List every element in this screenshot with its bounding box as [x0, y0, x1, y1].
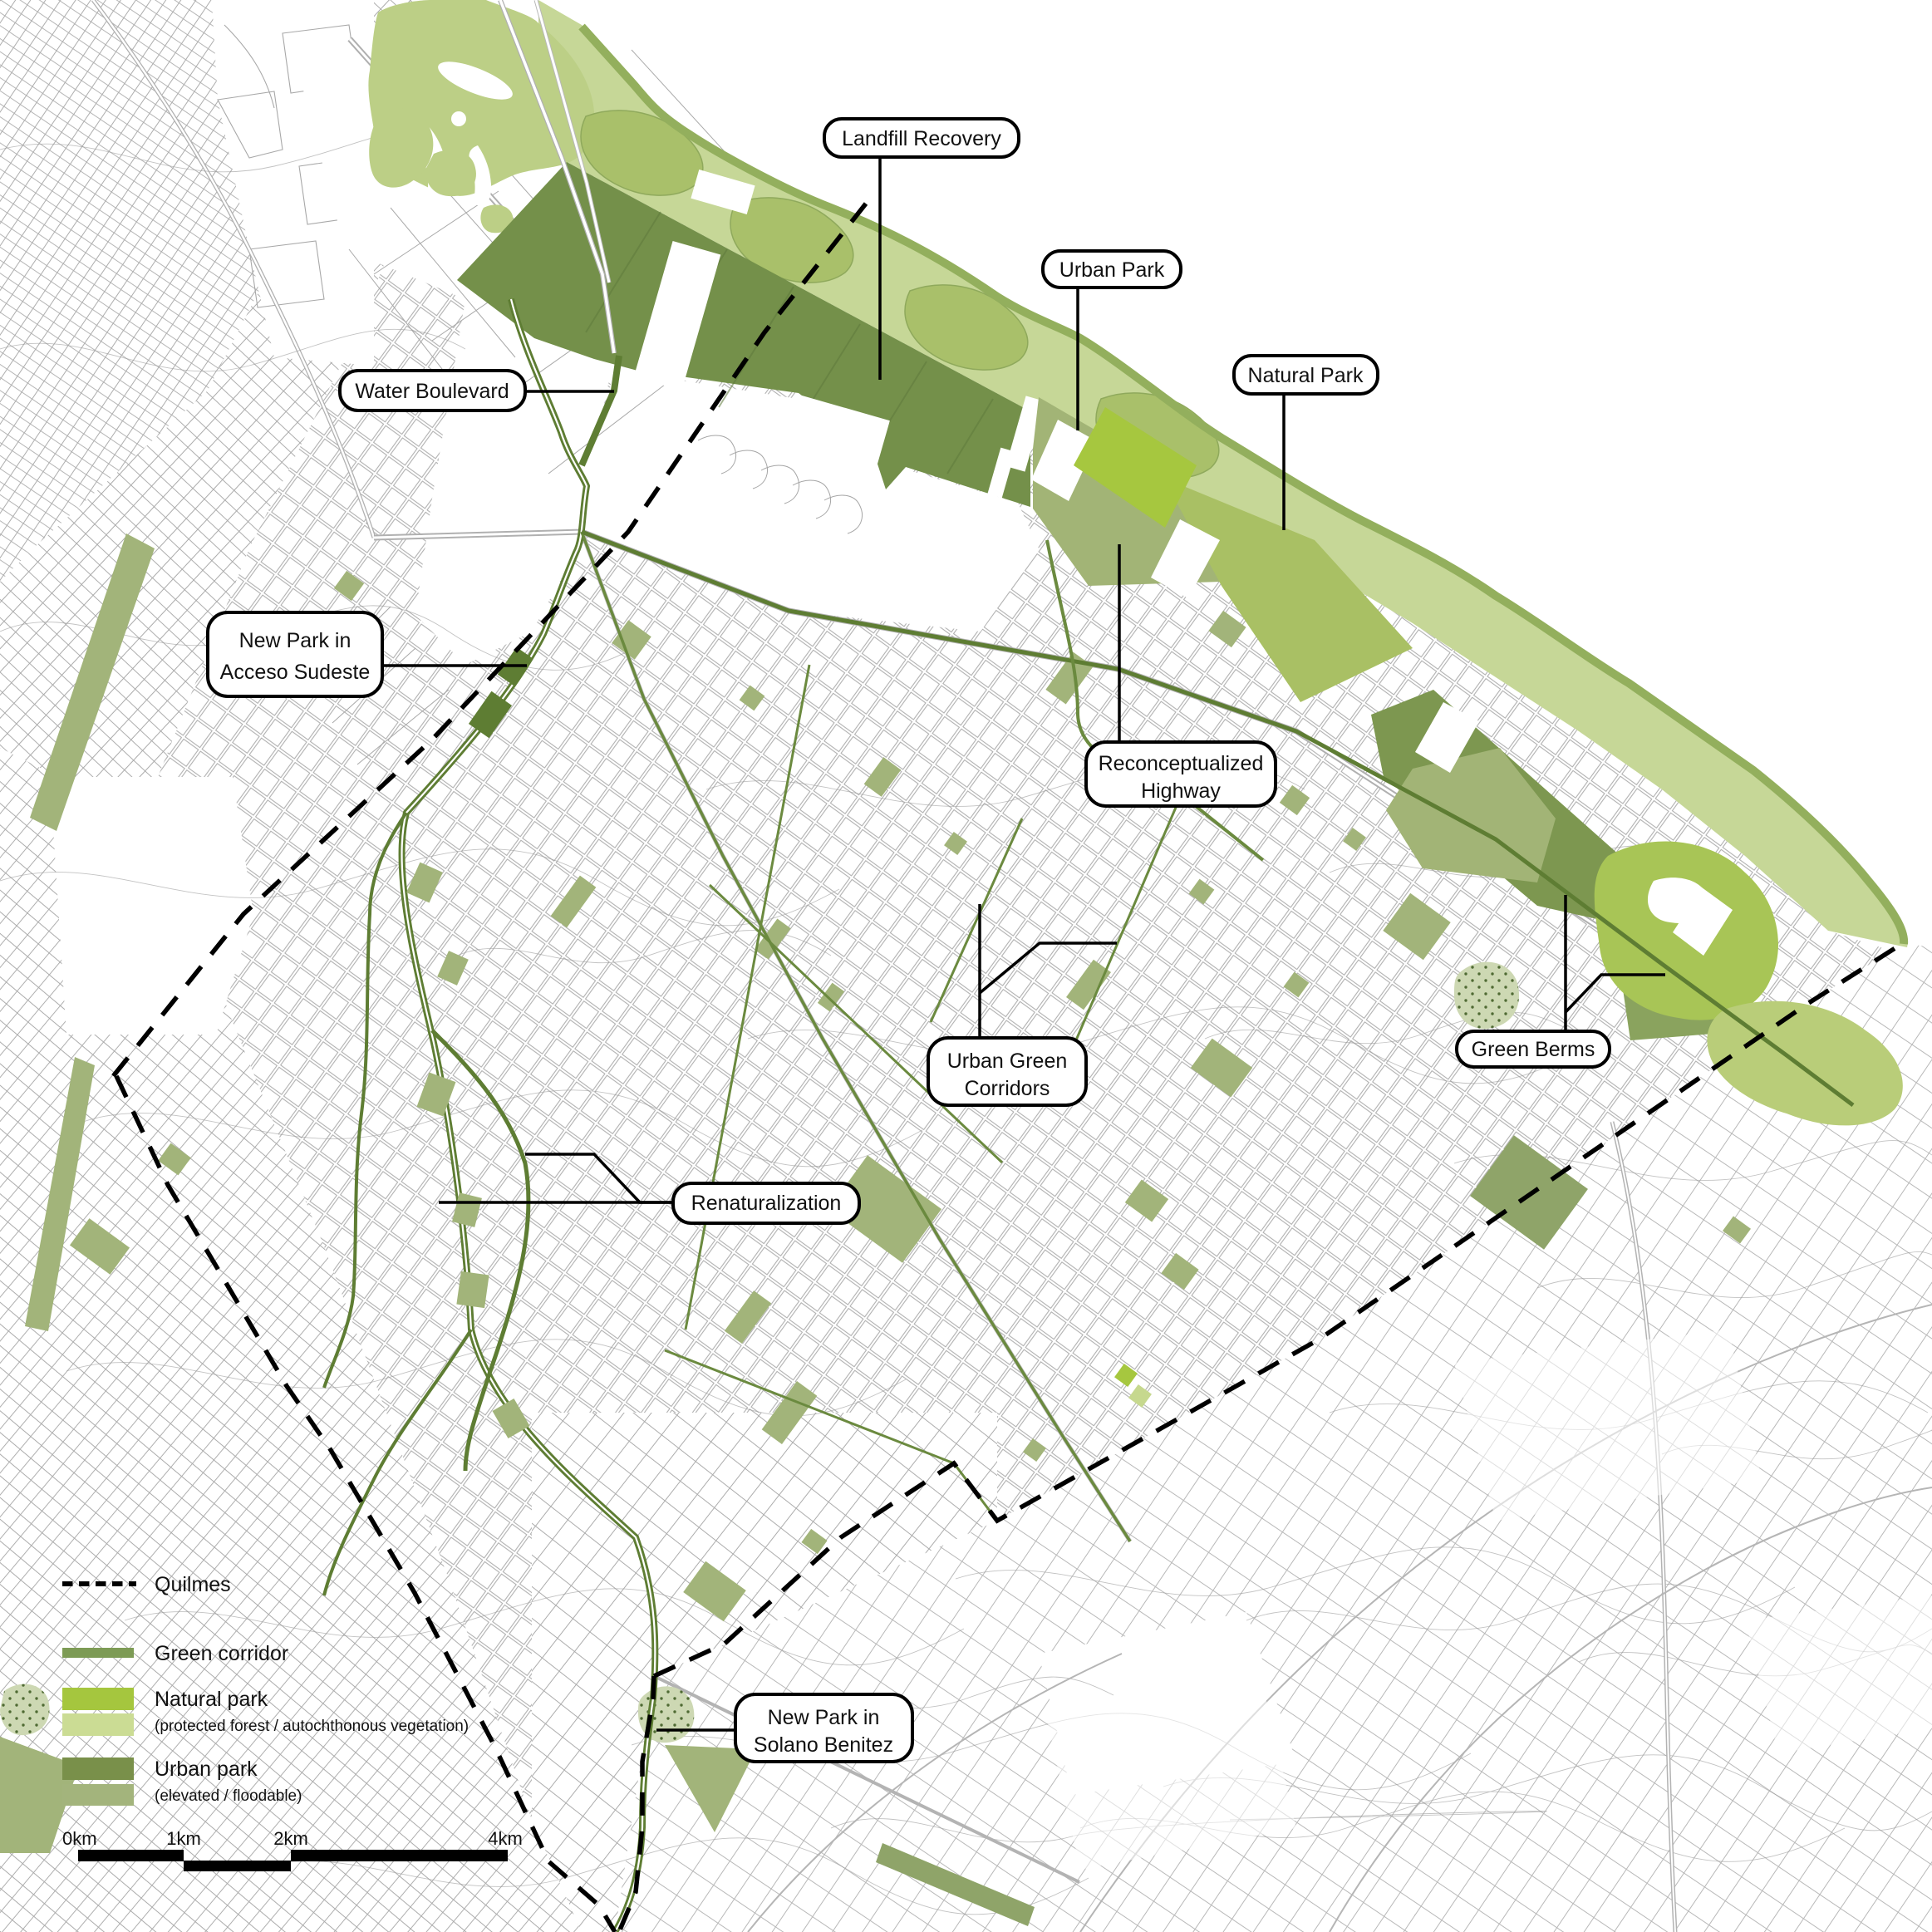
svg-text:Acceso Sudeste: Acceso Sudeste — [220, 661, 371, 684]
svg-text:4km: 4km — [488, 1828, 523, 1849]
svg-text:0km: 0km — [62, 1828, 97, 1849]
svg-text:Natural park: Natural park — [155, 1688, 268, 1711]
svg-text:Reconceptualized: Reconceptualized — [1099, 752, 1264, 775]
svg-text:Solano Benitez: Solano Benitez — [754, 1733, 893, 1757]
svg-text:New Park in: New Park in — [239, 629, 351, 652]
svg-text:Green Berms: Green Berms — [1472, 1038, 1595, 1061]
svg-text:2km: 2km — [273, 1828, 308, 1849]
svg-text:1km: 1km — [166, 1828, 201, 1849]
svg-text:Urban Green: Urban Green — [947, 1050, 1068, 1073]
svg-text:New Park in: New Park in — [768, 1706, 880, 1729]
svg-text:Urban park: Urban park — [155, 1757, 258, 1781]
svg-text:Natural Park: Natural Park — [1248, 364, 1364, 387]
svg-text:Green corridor: Green corridor — [155, 1642, 288, 1665]
svg-text:Renaturalization: Renaturalization — [691, 1192, 842, 1215]
svg-text:Highway: Highway — [1141, 779, 1221, 803]
svg-text:Urban Park: Urban Park — [1059, 258, 1165, 282]
svg-text:Water Boulevard: Water Boulevard — [355, 380, 509, 403]
svg-text:Landfill Recovery: Landfill Recovery — [842, 127, 1001, 150]
svg-text:Quilmes: Quilmes — [155, 1573, 231, 1596]
svg-text:(protected forest / autochthon: (protected forest / autochthonous vegeta… — [155, 1718, 469, 1735]
svg-text:(elevated / floodable): (elevated / floodable) — [155, 1787, 302, 1805]
svg-text:Corridors: Corridors — [965, 1077, 1050, 1100]
